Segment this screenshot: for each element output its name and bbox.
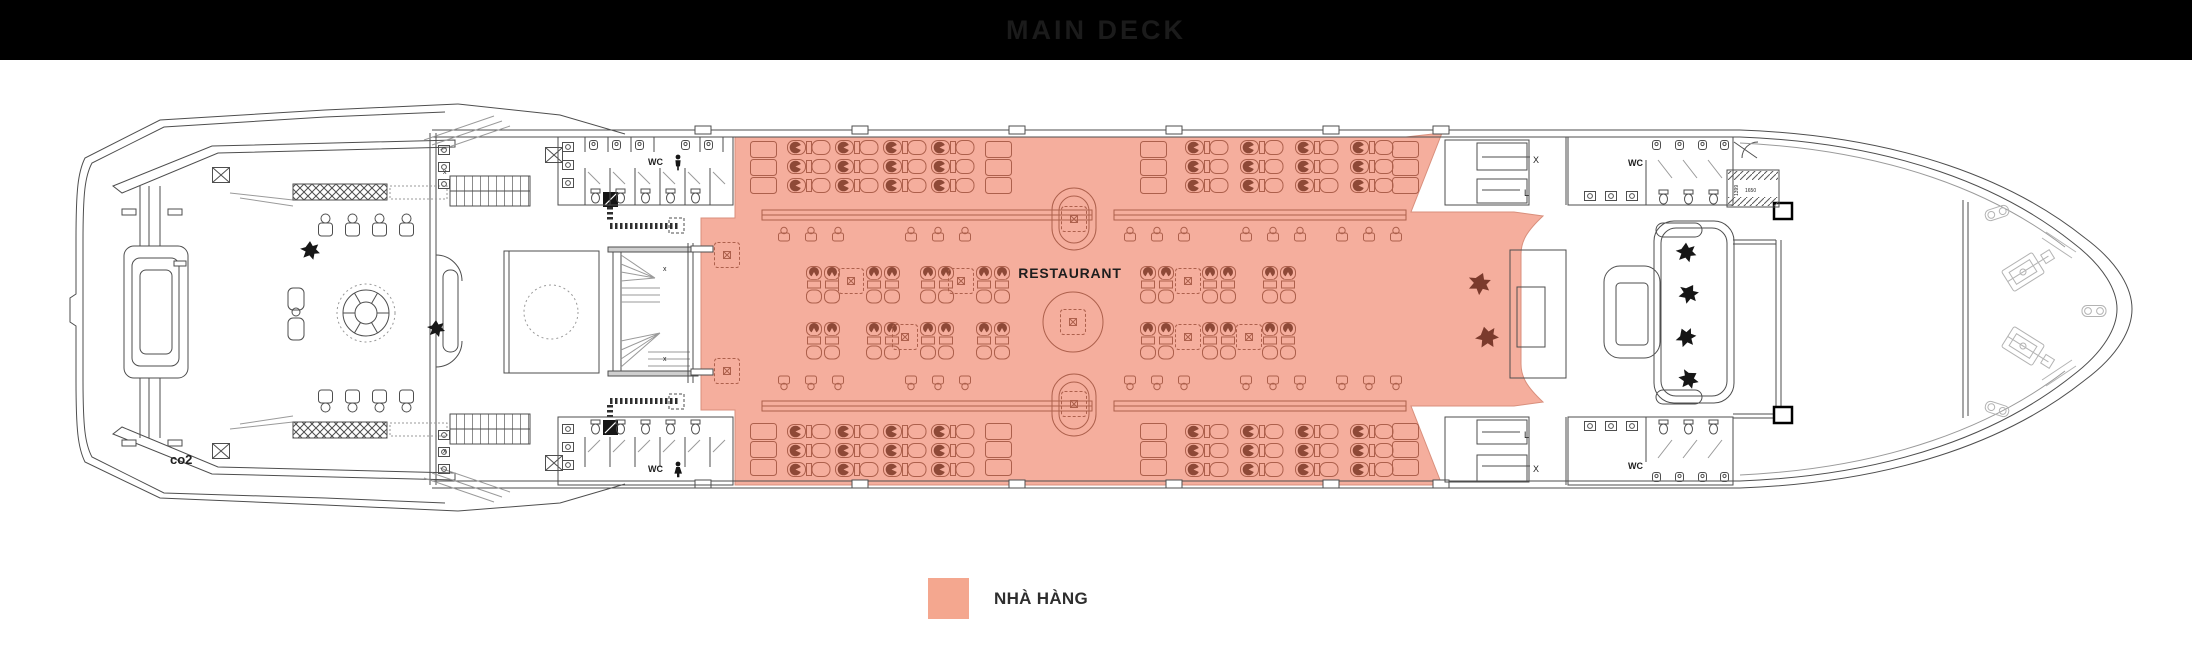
plant-icon [1674, 280, 1702, 307]
wc-room-top-right: WC [1566, 137, 1733, 205]
wc-label: WC [648, 157, 663, 167]
dimension-label: 1399 [1734, 185, 1740, 196]
legend-swatch [928, 578, 969, 619]
right-stairs-bottom: L X [1445, 417, 1539, 482]
restaurant-zone-area [701, 133, 1543, 485]
dimension-label: 1650 [1745, 188, 1756, 194]
corridor-stairs: x x [293, 169, 530, 455]
vent-box-icon [546, 148, 563, 163]
stair-label: L [1524, 430, 1529, 440]
bollard-icon [2082, 306, 2106, 317]
lounge-chair-row-top [319, 214, 414, 236]
wc-room-bottom-right: WC [1566, 417, 1733, 485]
wc-label: WC [648, 464, 663, 474]
deck-plan-page: MAIN DECK [0, 0, 2192, 660]
restaurant-label: RESTAURANT [1018, 265, 1121, 281]
wc-label: WC [1628, 461, 1643, 471]
bollard-icon [1984, 204, 2010, 222]
male-icon [675, 155, 680, 171]
legend: NHÀ HÀNG [928, 578, 1088, 619]
bow-equipment [1740, 143, 2106, 475]
vent-box-icon [213, 168, 230, 183]
stair-label: x [443, 169, 447, 176]
stair-label: L [1524, 188, 1529, 198]
wc-room-bottom-left: WC [558, 417, 733, 485]
stair-label: X [1533, 155, 1539, 165]
deck-box [1774, 407, 1792, 423]
plant-icon [1676, 243, 1697, 263]
female-icon [674, 462, 682, 478]
restaurant-zone [701, 133, 1543, 485]
stair-label: x [663, 356, 667, 363]
stair-label: X [1533, 464, 1539, 474]
stern-platform [124, 246, 188, 378]
plant-icon [1675, 365, 1703, 393]
plant-icon [1672, 324, 1699, 350]
plant-icon [300, 241, 320, 260]
right-stairs-top: X L [1445, 140, 1539, 205]
loveseats [288, 288, 304, 340]
lounge-chair-row-bottom [319, 390, 414, 412]
wc-label: WC [1628, 158, 1643, 168]
anchor-winch-icon [2001, 244, 2058, 292]
forward-lounge-structures [1604, 203, 1792, 423]
co2-label: co2 [170, 452, 192, 467]
central-room [504, 251, 599, 373]
round-sofa [337, 284, 395, 342]
vent-box-icon [546, 456, 563, 471]
bench [443, 270, 458, 352]
legend-label: NHÀ HÀNG [994, 589, 1088, 609]
wc-room-top-left: WC [558, 137, 733, 205]
fan-stairs: x x [608, 243, 713, 383]
ship-deck-plan: co2 x x [0, 0, 2192, 660]
technical-room: 1650 1399 [1727, 142, 1779, 207]
vent-box-icon [213, 444, 230, 459]
stair-label: x [663, 266, 667, 273]
anchor-winch-icon [2001, 326, 2058, 374]
